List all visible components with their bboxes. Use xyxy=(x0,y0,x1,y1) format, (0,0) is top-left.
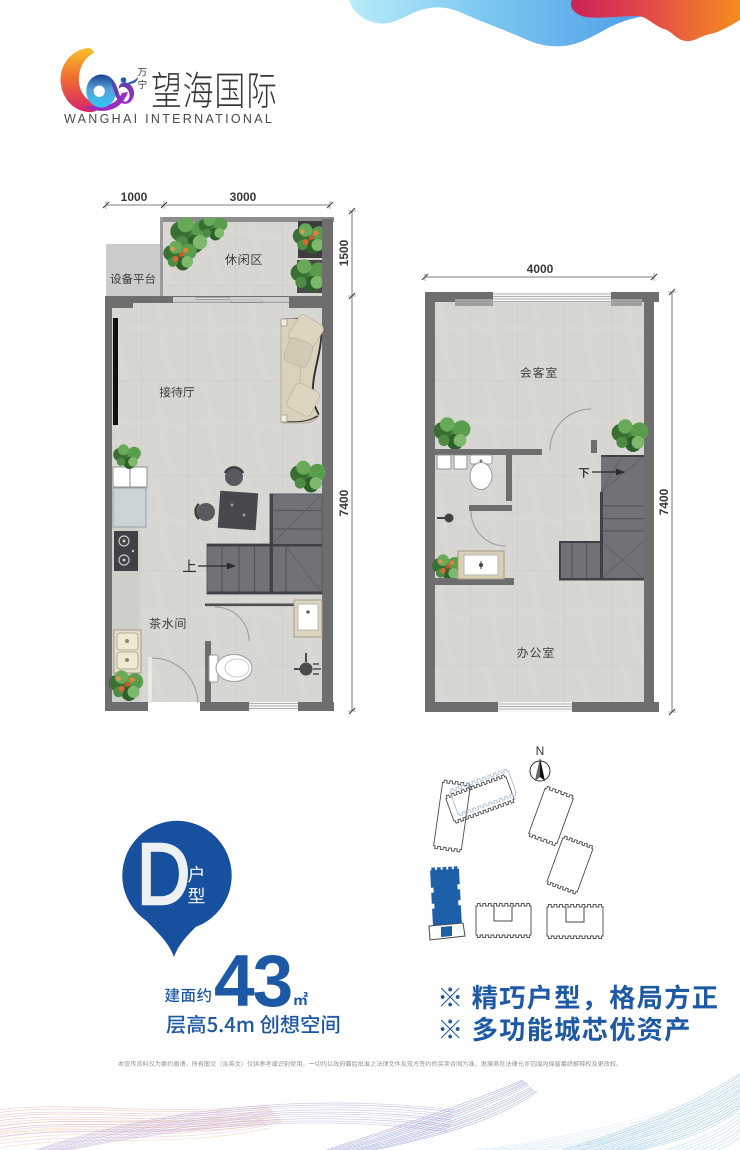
svg-text:1500: 1500 xyxy=(337,239,351,266)
svg-text:N: N xyxy=(536,744,545,758)
svg-text:3000: 3000 xyxy=(230,190,257,204)
svg-text:7400: 7400 xyxy=(657,488,671,515)
svg-text:D: D xyxy=(137,827,191,924)
svg-text:WANGHAI INTERNATIONAL: WANGHAI INTERNATIONAL xyxy=(64,112,274,126)
svg-text:7400: 7400 xyxy=(337,489,351,516)
svg-text:43: 43 xyxy=(214,941,291,1022)
svg-text:1000: 1000 xyxy=(121,190,148,204)
svg-text:4000: 4000 xyxy=(527,262,554,276)
